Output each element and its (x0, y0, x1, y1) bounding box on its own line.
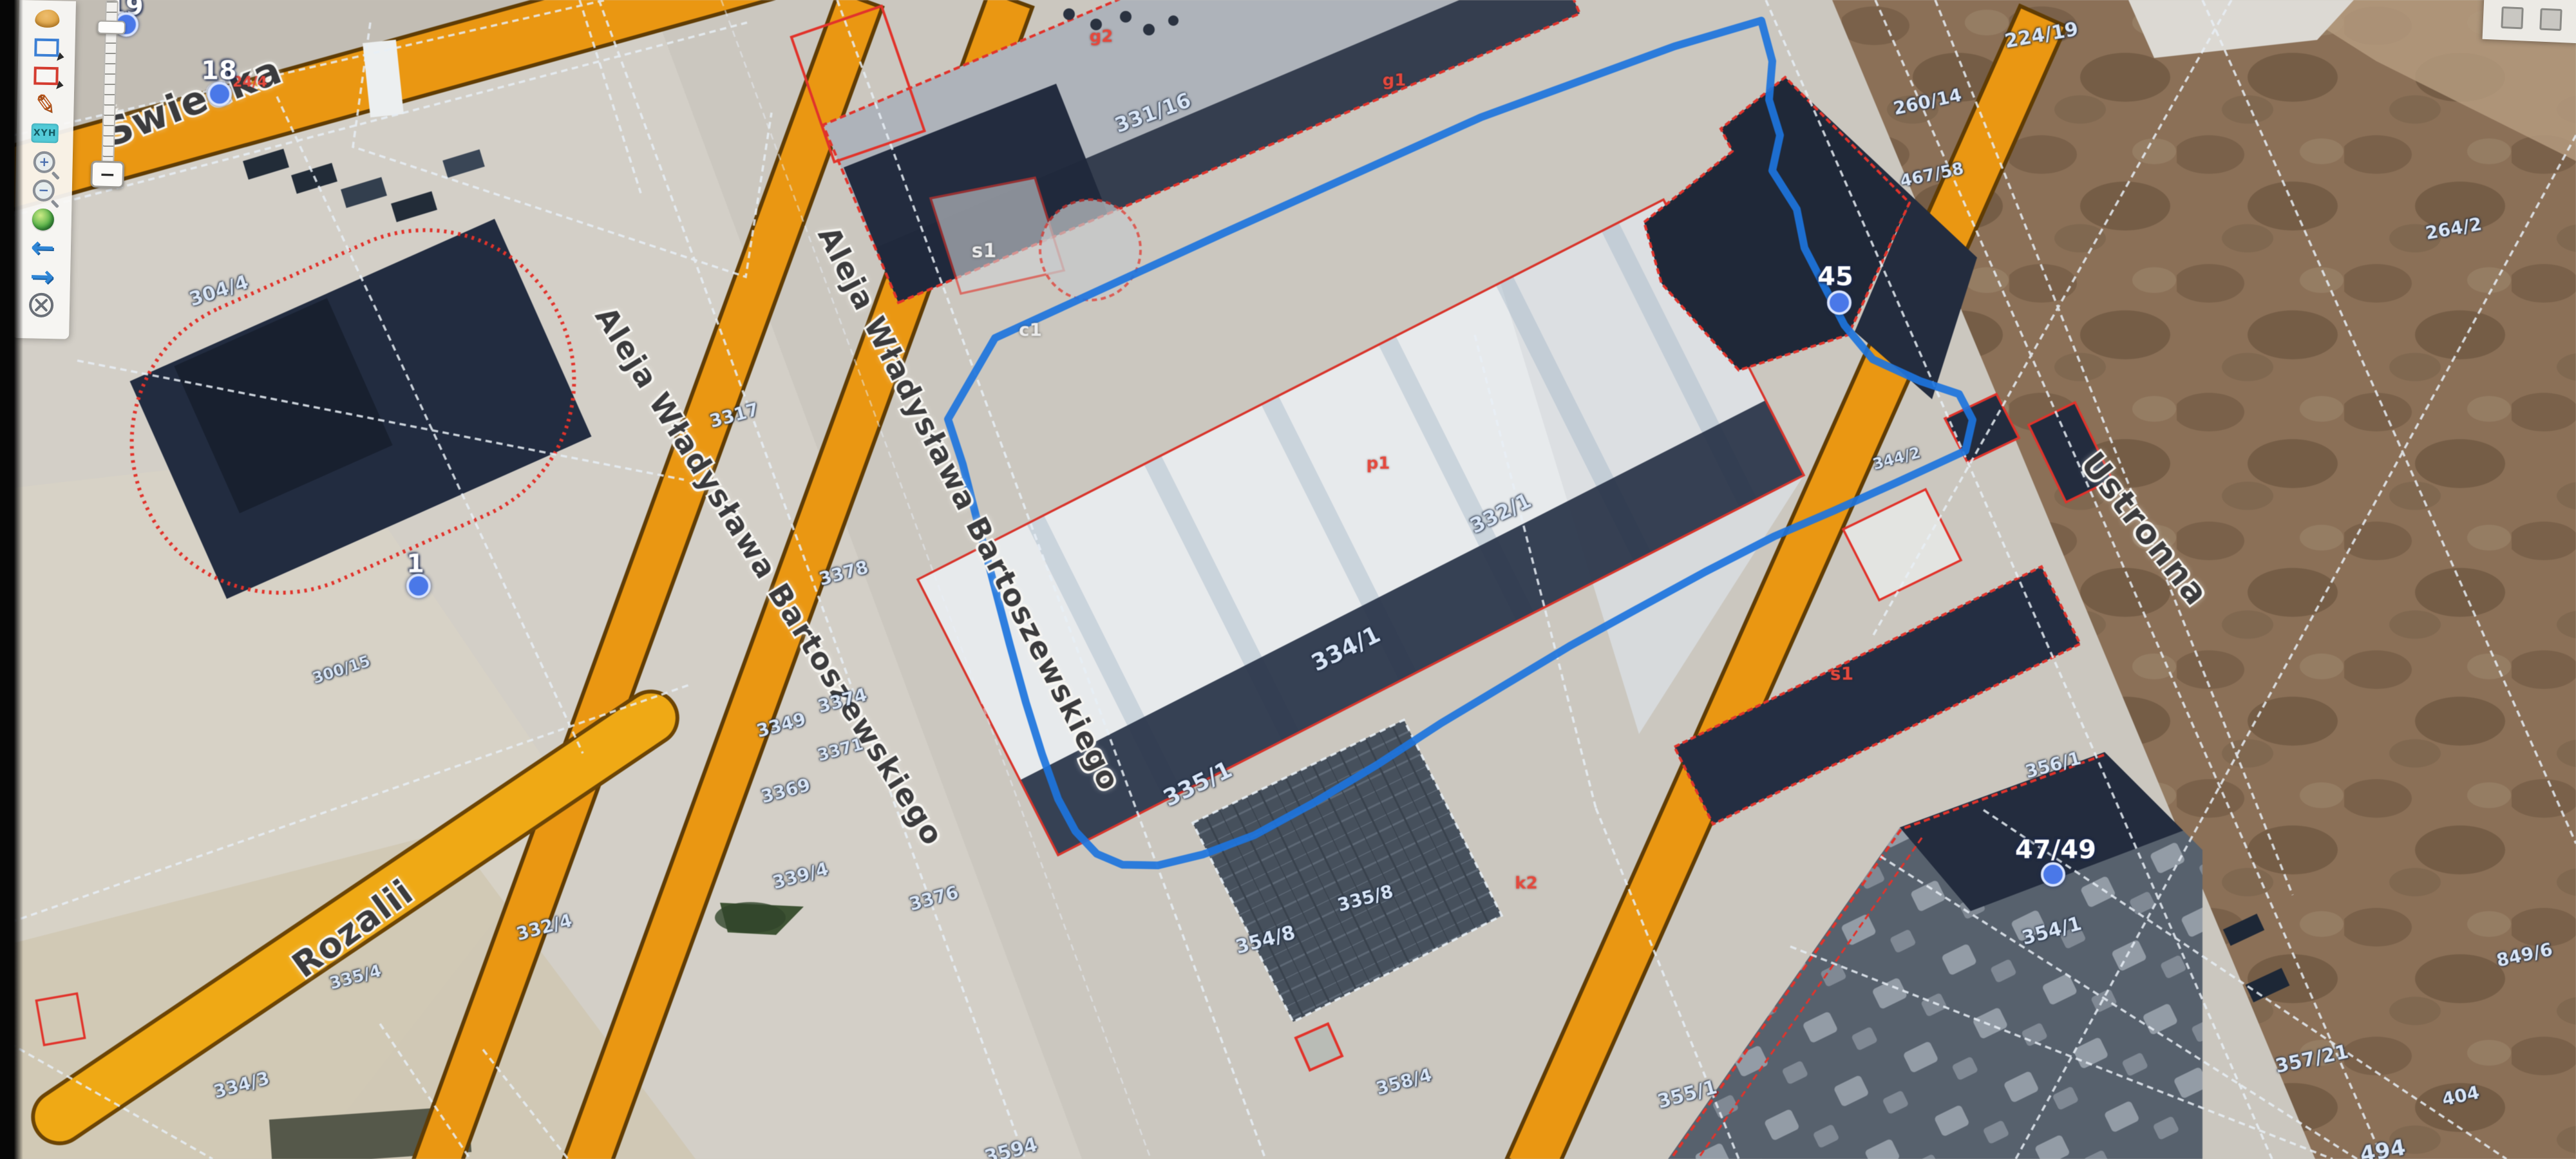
aerial-map-canvas (0, 0, 2576, 1159)
tool-select-red[interactable] (29, 62, 63, 89)
tool-coords[interactable]: XYH (28, 120, 62, 146)
deselect-rect-icon (33, 67, 59, 86)
select-rect-icon (34, 38, 59, 57)
panel-icon-b[interactable] (2539, 8, 2562, 31)
tool-full-extent[interactable] (26, 206, 60, 232)
zoom-out-icon: − (32, 180, 55, 202)
map-viewport[interactable]: ŚwieckaAleja Władysława BartoszewskiegoA… (0, 0, 2576, 1159)
tool-select-blue[interactable] (30, 34, 64, 61)
tank-silo (1040, 200, 1141, 300)
tool-zoom-in[interactable]: + (27, 149, 61, 175)
pan-icon (35, 10, 60, 28)
panel-icon-a[interactable] (2501, 6, 2523, 29)
tool-clear[interactable] (24, 292, 59, 318)
xyh-coordinates-icon: XYH (31, 123, 59, 143)
pencil-icon: ✎ (33, 90, 58, 119)
clear-icon (29, 292, 54, 317)
tool-pan[interactable] (30, 5, 64, 32)
globe-icon (32, 208, 55, 231)
zoom-out-button[interactable]: − (90, 160, 124, 188)
tool-draw[interactable]: ✎ (28, 91, 62, 118)
tool-zoom-out[interactable]: − (26, 177, 61, 203)
zoom-slider: − (89, 0, 133, 194)
tool-next-view[interactable]: → (25, 263, 59, 290)
arrow-left-icon: ← (30, 233, 55, 262)
zoom-in-icon: + (33, 151, 55, 173)
tool-prev-view[interactable]: ← (26, 234, 60, 261)
zoom-slider-thumb[interactable] (97, 20, 126, 34)
arrow-right-icon: → (30, 262, 54, 291)
gis-app-window: ŚwieckaAleja Władysława BartoszewskiegoA… (0, 0, 2576, 1159)
photo-bezel-edge (0, 0, 23, 1159)
corner-panel (2483, 0, 2576, 43)
